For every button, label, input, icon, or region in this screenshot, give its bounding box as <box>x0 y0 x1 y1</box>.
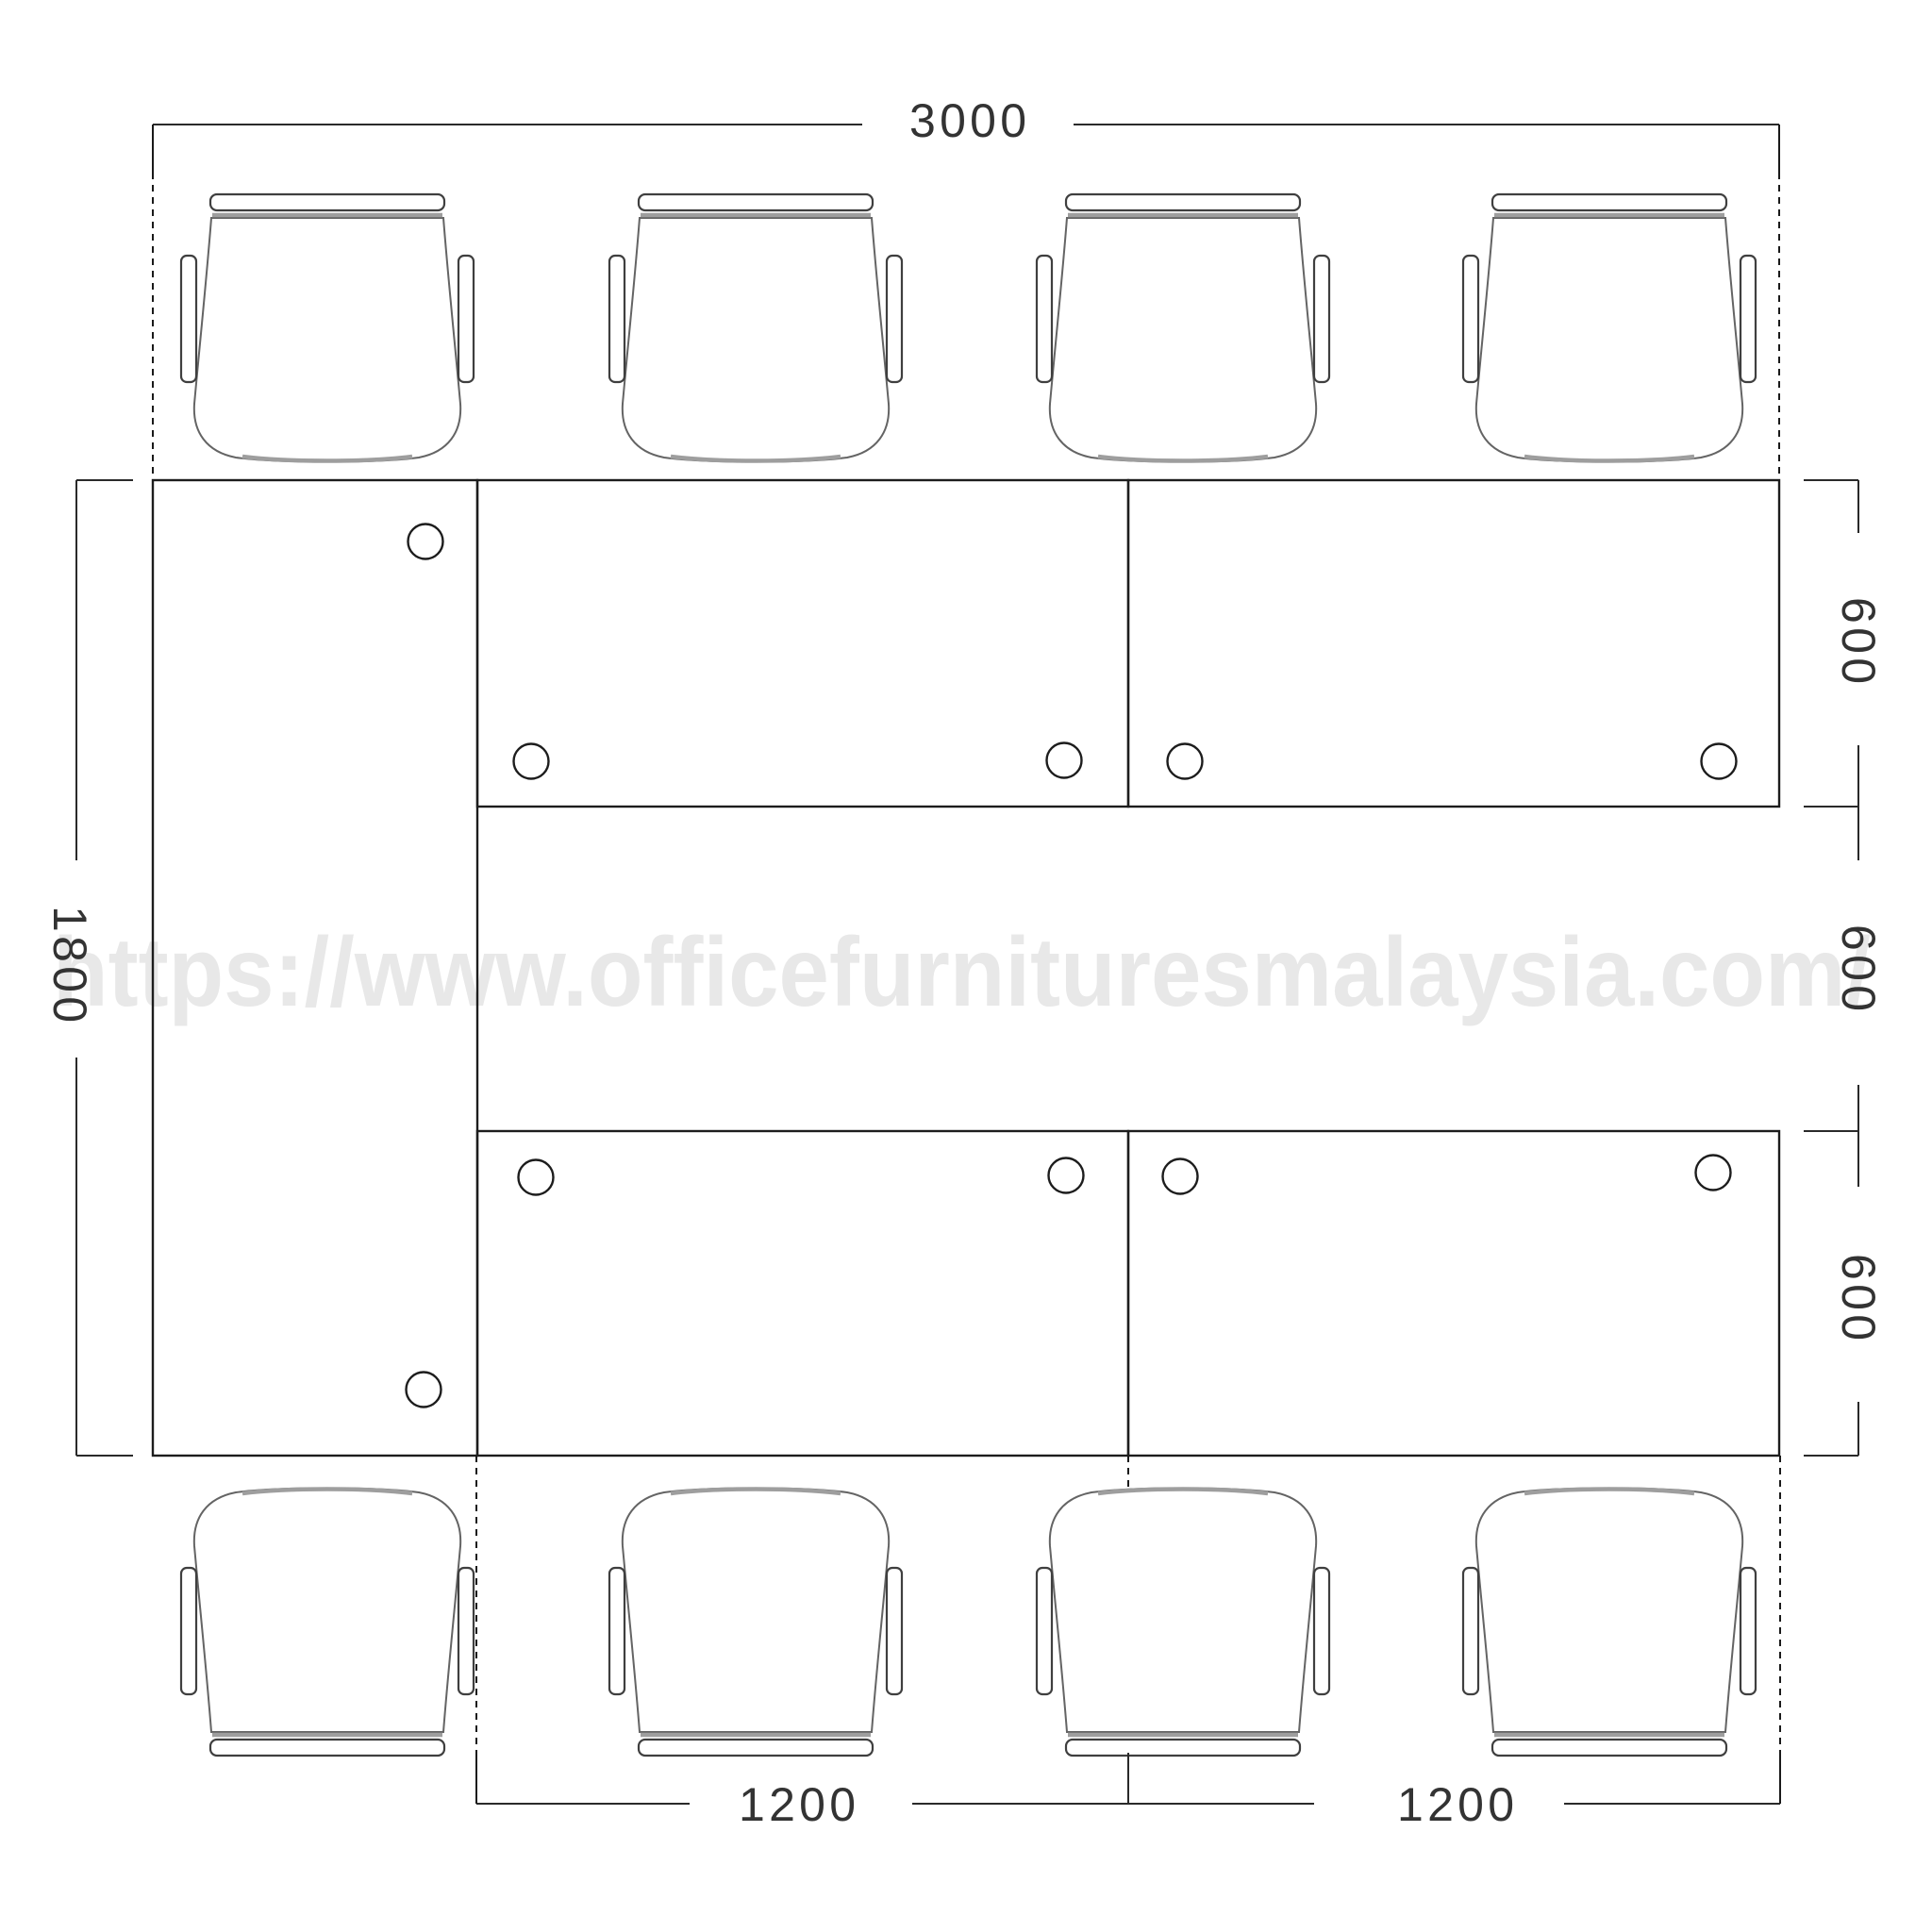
svg-text:600: 600 <box>1832 924 1885 1011</box>
svg-text:600: 600 <box>1832 597 1885 684</box>
svg-text:600: 600 <box>1832 1254 1885 1341</box>
svg-text:https://www.officefurnituresma: https://www.officefurnituresmalaysia.com… <box>53 918 1871 1027</box>
